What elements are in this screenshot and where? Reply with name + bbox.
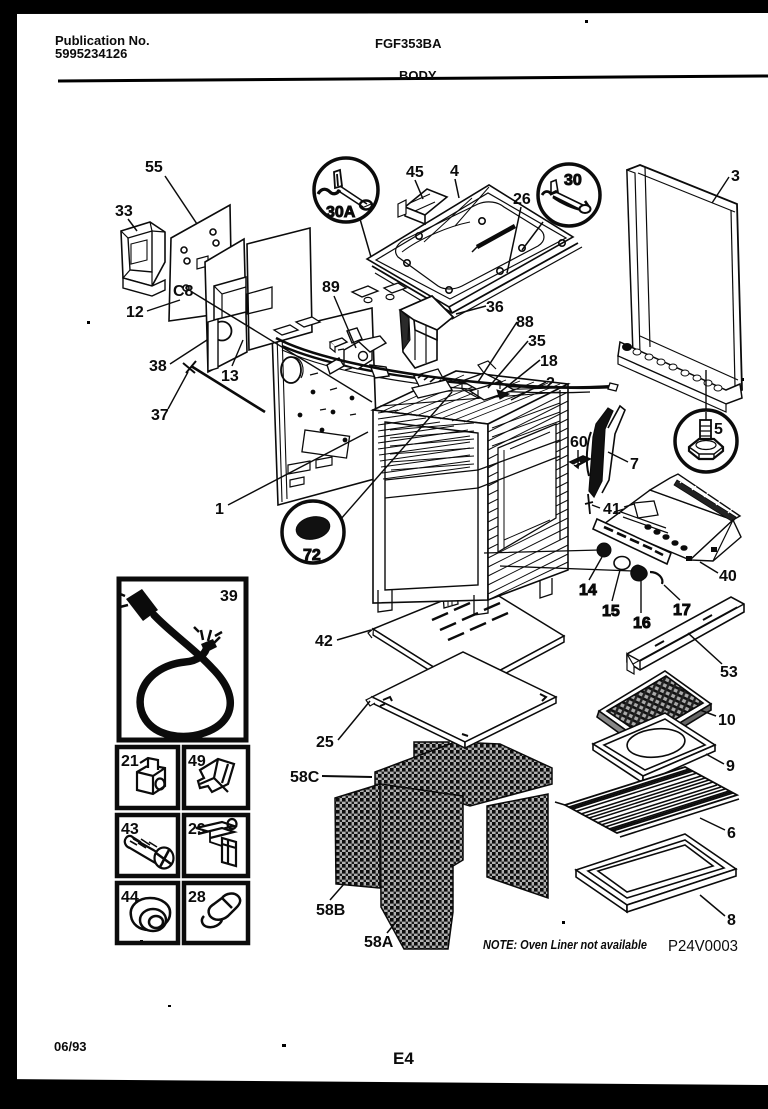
svg-text:39: 39	[220, 588, 238, 605]
svg-text:6: 6	[727, 825, 736, 842]
svg-text:12: 12	[126, 304, 144, 321]
svg-text:60: 60	[570, 434, 588, 451]
svg-text:53: 53	[720, 664, 738, 681]
svg-text:26: 26	[513, 191, 531, 208]
svg-text:17: 17	[673, 602, 691, 619]
svg-text:58C: 58C	[290, 769, 320, 786]
svg-text:89: 89	[322, 279, 340, 296]
svg-text:36: 36	[486, 299, 504, 316]
svg-text:28: 28	[188, 889, 206, 906]
svg-text:15: 15	[602, 603, 620, 620]
svg-text:13: 13	[221, 368, 239, 385]
svg-text:40: 40	[719, 568, 737, 585]
svg-text:NOTE: Oven Liner not available: NOTE: Oven Liner not available	[483, 938, 647, 952]
svg-text:1: 1	[215, 501, 224, 518]
svg-text:58A: 58A	[364, 934, 394, 951]
svg-text:38: 38	[149, 358, 167, 375]
svg-text:8: 8	[727, 912, 736, 929]
svg-text:33: 33	[115, 203, 133, 220]
svg-text:35: 35	[528, 333, 546, 350]
svg-text:25: 25	[316, 734, 334, 751]
svg-text:37: 37	[151, 407, 169, 424]
svg-text:9: 9	[726, 758, 735, 775]
svg-text:5: 5	[714, 421, 723, 438]
svg-text:30A: 30A	[326, 204, 356, 221]
svg-text:C8: C8	[173, 283, 194, 300]
svg-text:41: 41	[603, 501, 621, 518]
svg-text:16: 16	[633, 615, 651, 632]
svg-text:10: 10	[718, 712, 736, 729]
svg-text:18: 18	[540, 353, 558, 370]
svg-text:7: 7	[630, 456, 639, 473]
svg-text:06/93: 06/93	[54, 1039, 87, 1054]
svg-text:88: 88	[516, 314, 534, 331]
svg-text:E4: E4	[393, 1049, 414, 1068]
svg-text:42: 42	[315, 633, 333, 650]
svg-text:P24V0003: P24V0003	[668, 938, 738, 955]
svg-text:2: 2	[546, 375, 555, 392]
svg-text:72: 72	[303, 547, 321, 564]
svg-text:45: 45	[406, 164, 424, 181]
svg-text:3: 3	[731, 168, 740, 185]
svg-text:58B: 58B	[316, 902, 345, 919]
svg-text:FGF353BA: FGF353BA	[375, 36, 442, 51]
svg-text:21: 21	[121, 753, 139, 770]
svg-text:4: 4	[450, 163, 459, 180]
svg-text:30: 30	[564, 172, 582, 189]
svg-text:5995234126: 5995234126	[55, 46, 127, 61]
svg-text:BODY: BODY	[399, 68, 437, 83]
svg-text:14: 14	[579, 582, 597, 599]
svg-text:55: 55	[145, 159, 163, 176]
